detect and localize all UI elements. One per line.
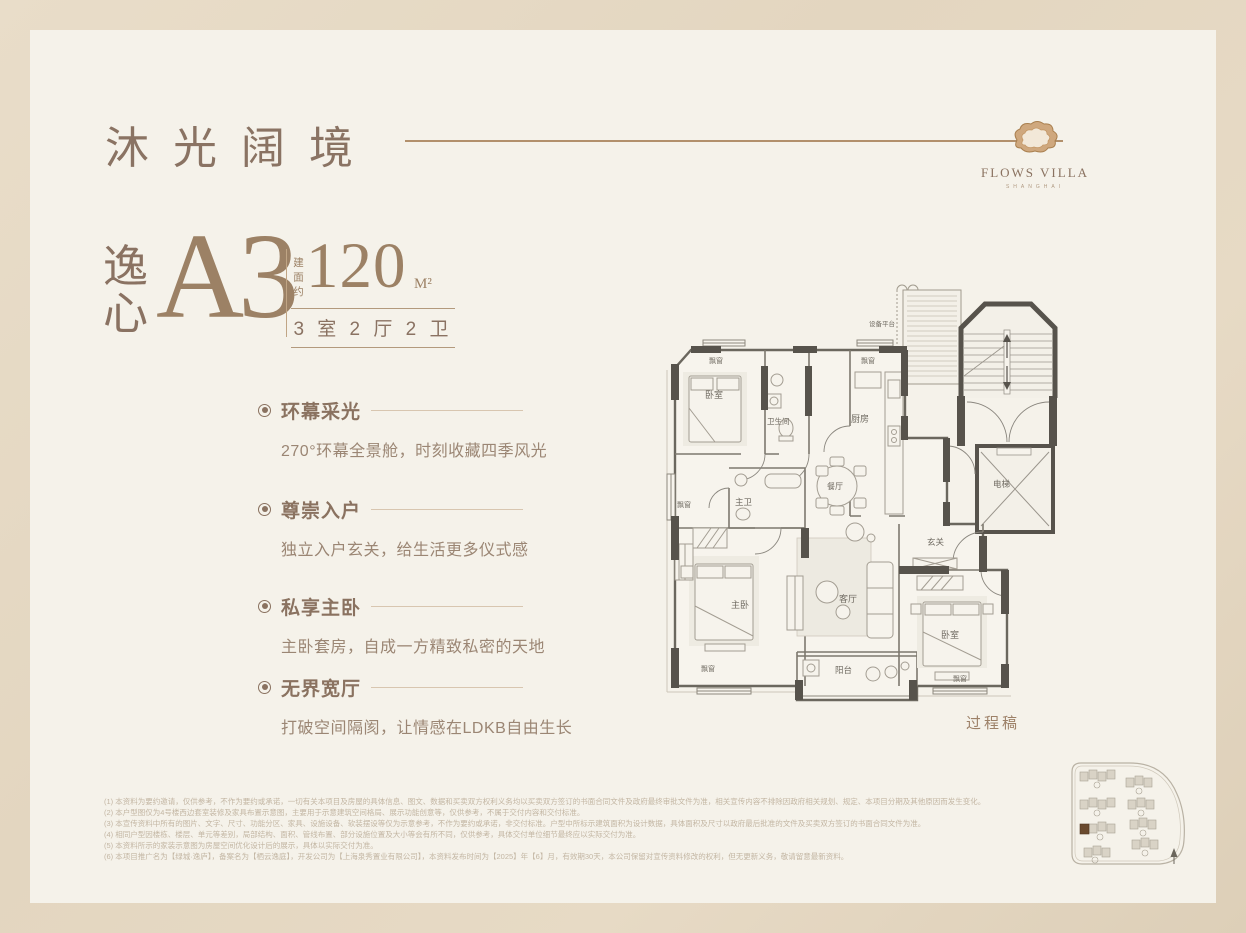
feature-title: 无界宽厅 [281, 674, 361, 701]
room-label-bay-window: 飘窗 [953, 674, 967, 684]
disclaimer-line: (4) 相同户型因楼栋、楼层、单元等差别，局部结构、面积、管线布置、部分设施位置… [104, 829, 904, 840]
room-label-bay-window: 飘窗 [709, 356, 723, 366]
seal-cloud-icon [1007, 120, 1063, 158]
logo: FLOWS VILLA SHANGHAI [975, 108, 1095, 190]
feature-rule [371, 509, 523, 510]
unit-series-name: 逸心 [103, 244, 151, 338]
disclaimer-line: (2) 本户型图仅为4号楼西边套室装修及家具布置示意图，主要用于示意建筑空间格局… [104, 807, 904, 818]
rooms-summary: 3 室 2 厅 2 卫 [291, 308, 455, 348]
feature-desc: 270°环幕全景舱，时刻收藏四季风光 [281, 437, 523, 461]
disclaimer-line: (3) 本宣传资料中所有的图片、文字、尺寸、功能分区、家具、设施设备、软装摆设等… [104, 818, 904, 829]
feature-title: 私享主卧 [281, 593, 361, 620]
room-label-balcony: 阳台 [835, 664, 852, 676]
area-label: 建面约 [291, 257, 306, 301]
feature-rule [371, 410, 523, 411]
logo-name: FLOWS VILLA [975, 165, 1095, 181]
feature-item: 无界宽厅 打破空间隔阂，让情感在LDKB自由生长 [258, 675, 523, 738]
room-label-master-bath: 主卫 [735, 496, 752, 508]
header-divider [405, 140, 1063, 142]
feature-desc: 独立入户玄关，给生活更多仪式感 [281, 536, 523, 560]
feature-item: 私享主卧 主卧套房，自成一方精致私密的天地 [258, 594, 523, 657]
disclaimer-line: (1) 本资料为要约邀请，仅供参考，不作为要约或承诺，一切有关本项目及房屋的具体… [104, 796, 904, 807]
room-label-bay-window: 飘窗 [861, 356, 875, 366]
content-card: 沐光阔境 FLOWS VILLA SHANGHAI 逸心 A3 建面约 120 … [30, 30, 1216, 903]
room-label-equipment-platform: 设备平台 [869, 318, 895, 328]
feature-title: 环幕采光 [281, 397, 361, 424]
room-label-foyer: 玄关 [927, 536, 944, 548]
feature-list: 环幕采光 270°环幕全景舱，时刻收藏四季风光 尊崇入户 独立入户玄关，给生活更… [258, 398, 523, 738]
draft-stage-label: 过程稿 [966, 712, 1020, 733]
site-map [1056, 750, 1196, 880]
room-label-master-bedroom: 主卧 [731, 598, 749, 611]
feature-rule [371, 606, 523, 607]
feature-desc: 主卧套房，自成一方精致私密的天地 [281, 633, 523, 657]
feature-item: 环幕采光 270°环幕全景舱，时刻收藏四季风光 [258, 398, 523, 461]
floorplan: 设备平台 飘窗 卧室 卫生间 厨房 飘窗 餐厅 主卫 飘窗 主卧 客厅 玄关 卧… [645, 276, 1077, 726]
feature-bullet-icon [258, 600, 271, 613]
disclaimer-block: (1) 本资料为要约邀请，仅供参考，不作为要约或承诺，一切有关本项目及房屋的具体… [104, 796, 904, 862]
room-label-dining-room: 餐厅 [827, 481, 843, 492]
page-title: 沐光阔境 [105, 112, 377, 176]
highlighted-building [1080, 824, 1089, 834]
room-label-bathroom: 卫生间 [767, 416, 790, 427]
room-label-living-room: 客厅 [839, 592, 857, 605]
brochure-page: 房天下Fang.com 房天下Fang.com 房天下Fang.com 房天下F… [0, 0, 1246, 933]
room-label-bay-window: 飘窗 [677, 500, 691, 510]
area-value: 120 [306, 234, 407, 299]
room-label-elevator: 电梯 [993, 478, 1010, 490]
room-label-kitchen: 厨房 [851, 412, 869, 425]
feature-bullet-icon [258, 404, 271, 417]
area-unit: M² [414, 276, 432, 293]
unit-code: A3 [156, 216, 293, 338]
feature-item: 尊崇入户 独立入户玄关，给生活更多仪式感 [258, 497, 523, 560]
feature-rule [371, 687, 523, 688]
headline-divider [286, 249, 287, 337]
disclaimer-line: (6) 本项目推广名为【绿城·逸庐】，备案名为【栖云逸庭】，开发公司为【上海泉秀… [104, 851, 904, 862]
room-label-bedroom: 卧室 [941, 628, 959, 641]
feature-title: 尊崇入户 [281, 496, 361, 523]
feature-bullet-icon [258, 503, 271, 516]
disclaimer-line: (5) 本资料所示的家装示意图为房屋空间优化设计后的展示，具体以实际交付为准。 [104, 840, 904, 851]
floorplan-drawing [645, 276, 1077, 726]
room-label-bay-window: 飘窗 [701, 664, 715, 674]
feature-bullet-icon [258, 681, 271, 694]
room-label-bedroom: 卧室 [705, 388, 723, 401]
feature-desc: 打破空间隔阂，让情感在LDKB自由生长 [281, 714, 523, 738]
logo-subtitle: SHANGHAI [975, 184, 1095, 190]
site-map-drawing [1056, 750, 1196, 880]
